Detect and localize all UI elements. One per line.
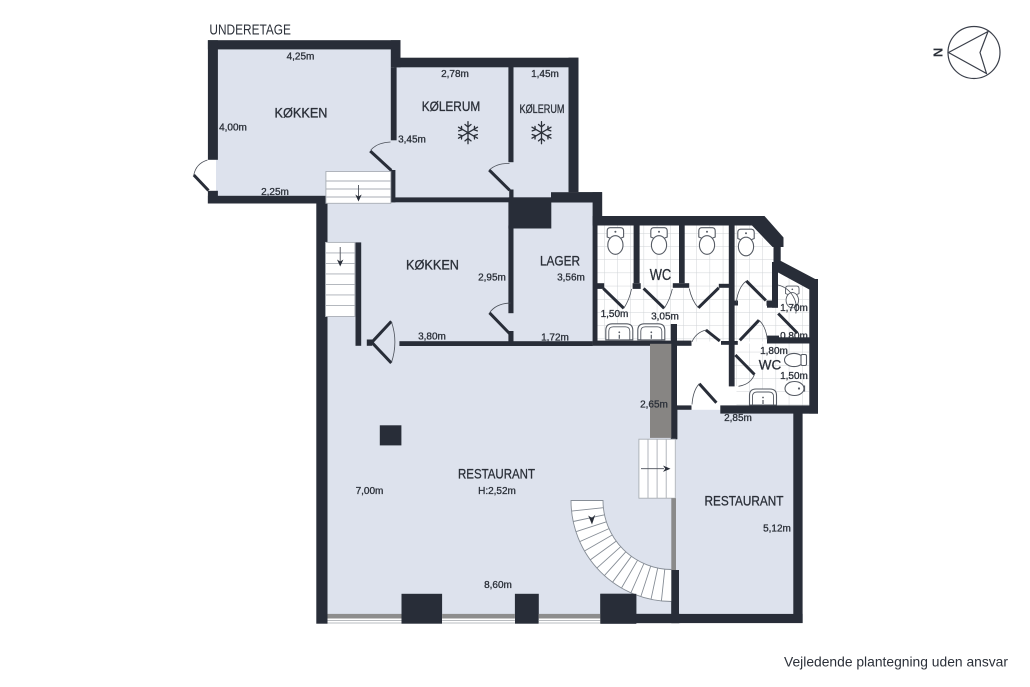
svg-text:LAGER: LAGER [540,254,580,269]
svg-text:8,60m: 8,60m [484,580,512,591]
svg-text:3,56m: 3,56m [557,273,585,284]
svg-text:Vejledende plantegning uden an: Vejledende plantegning uden ansvar [784,654,1008,670]
svg-text:1,50m: 1,50m [780,371,808,382]
svg-text:RESTAURANT: RESTAURANT [458,467,535,482]
svg-text:RESTAURANT: RESTAURANT [705,494,784,509]
svg-text:KØKKEN: KØKKEN [275,106,328,121]
svg-text:2,65m: 2,65m [640,400,668,411]
svg-text:N: N [931,48,946,57]
svg-text:3,80m: 3,80m [418,332,446,343]
svg-text:4,25m: 4,25m [287,52,315,63]
svg-text:1,72m: 1,72m [541,333,569,344]
svg-text:1,80m: 1,80m [760,346,788,357]
svg-text:KØKKEN: KØKKEN [406,258,459,273]
svg-text:KØLERUM: KØLERUM [422,99,481,114]
svg-text:WC: WC [650,267,672,284]
svg-text:3,45m: 3,45m [398,135,426,146]
svg-text:2,85m: 2,85m [724,413,752,424]
svg-text:5,12m: 5,12m [763,524,791,535]
svg-text:H:2,52m: H:2,52m [478,486,516,497]
svg-text:2,95m: 2,95m [478,273,506,284]
svg-text:2,78m: 2,78m [441,69,469,80]
svg-text:1,50m: 1,50m [601,309,629,320]
svg-text:UNDERETAGE: UNDERETAGE [209,23,291,39]
svg-text:1,45m: 1,45m [531,69,559,80]
svg-text:1,70m: 1,70m [780,303,808,314]
svg-text:WC: WC [759,357,782,373]
svg-text:0,80m: 0,80m [780,331,808,342]
svg-text:4,00m: 4,00m [219,123,247,134]
svg-text:3,05m: 3,05m [651,312,679,323]
svg-text:KØLERUM: KØLERUM [520,104,565,116]
svg-text:2,25m: 2,25m [261,187,289,198]
svg-text:7,00m: 7,00m [356,486,384,497]
